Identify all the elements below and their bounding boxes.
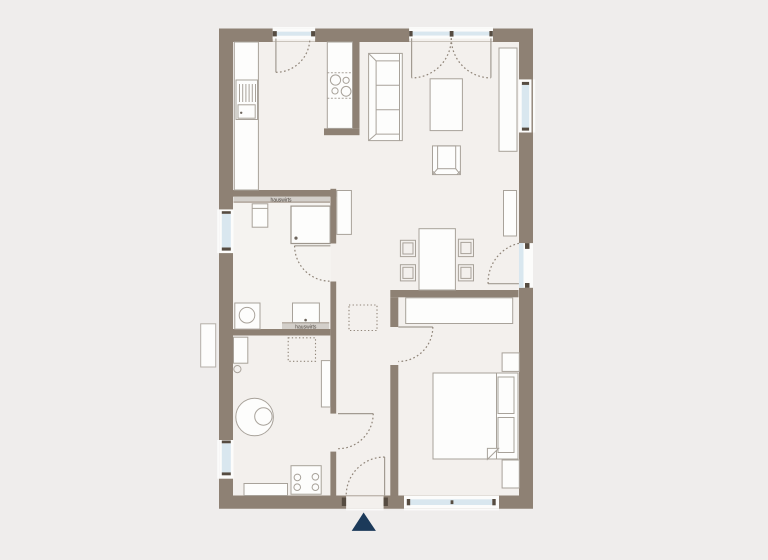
svg-text:hauswirts: hauswirts (270, 197, 292, 203)
svg-text:hauswirts: hauswirts (295, 324, 317, 330)
